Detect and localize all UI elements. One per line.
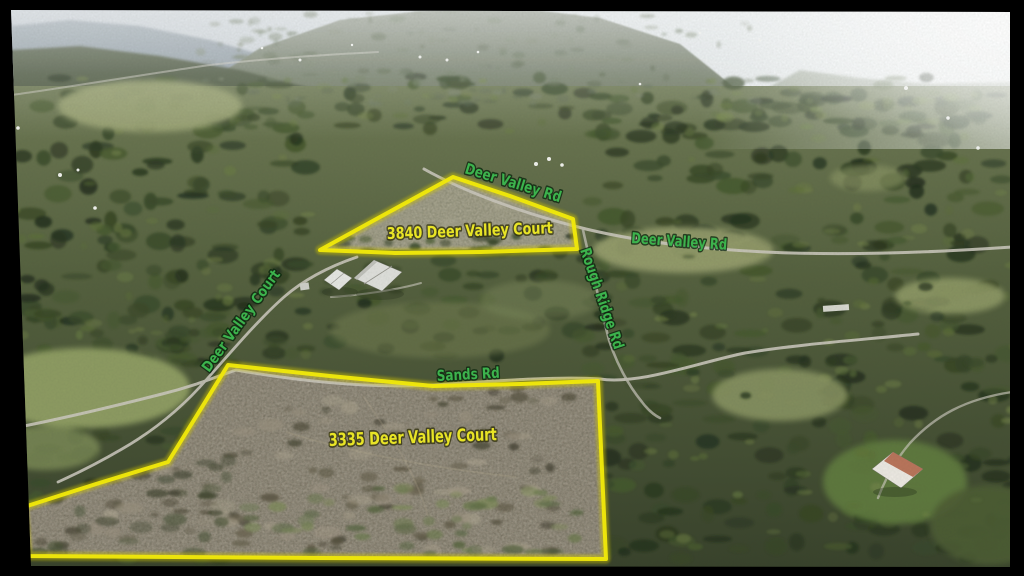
road-label-sands-rd: Sands Rd: [436, 364, 500, 385]
letterboxed-aerial-photo: Deer Valley Rd Deer Valley Rd Rough Ridg…: [0, 0, 1024, 576]
photo-content: Deer Valley Rd Deer Valley Rd Rough Ridg…: [0, 0, 1024, 567]
aerial-photo: Deer Valley Rd Deer Valley Rd Rough Ridg…: [0, 0, 1024, 576]
